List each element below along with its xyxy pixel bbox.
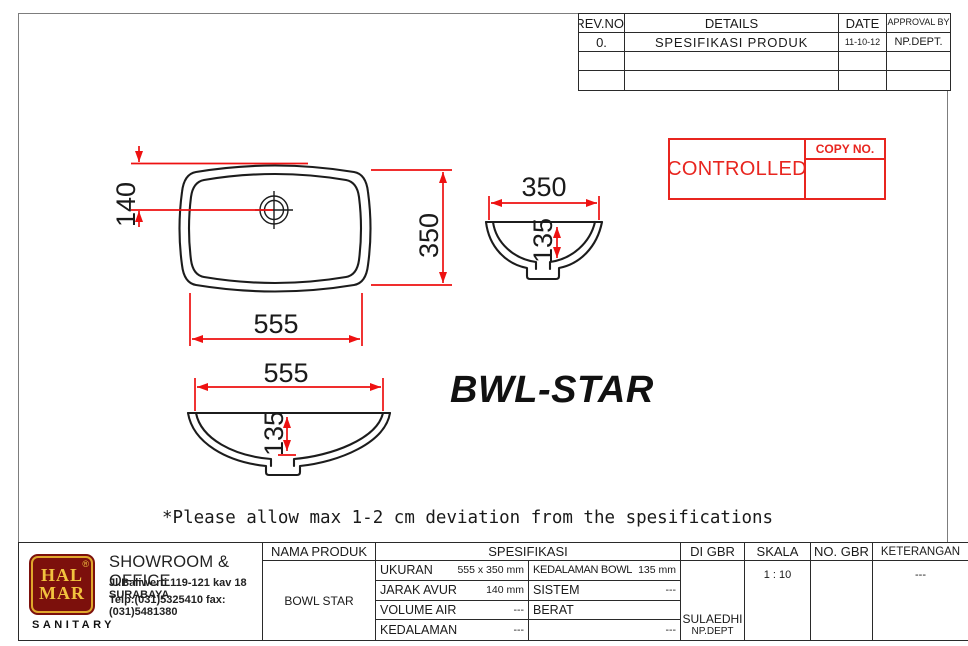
dim-140-text: 140 — [111, 182, 141, 227]
deviation-note: *Please allow max 1-2 cm deviation from … — [162, 508, 773, 528]
logo-text-hal: HAL — [41, 567, 83, 584]
spec-value: --- — [514, 604, 525, 616]
di-gbr-header: DI GBR — [681, 543, 744, 561]
skala-header: SKALA — [745, 543, 810, 561]
nama-produk-value: BOWL STAR — [263, 561, 375, 640]
top-view — [180, 166, 371, 292]
spec-label: VOLUME AIR — [380, 603, 456, 617]
dim-555-front-text: 555 — [263, 358, 308, 388]
spec-label: BERAT — [533, 603, 574, 617]
spec-label: JARAK AVUR — [380, 583, 457, 597]
spec-row-empty: --- — [529, 620, 680, 640]
front-inner-wall — [196, 413, 383, 466]
dim-135-side-text: 135 — [528, 218, 558, 263]
dim-135-front: 135 — [259, 411, 296, 456]
spec-label: UKURAN — [380, 563, 433, 577]
skala-value: 1 : 10 — [745, 569, 810, 581]
product-title: BWL-STAR — [450, 369, 654, 412]
logo-text-mar: MAR — [39, 585, 85, 602]
spec-row-volume-air: VOLUME AIR --- — [376, 601, 529, 621]
spec-row-kedalaman-bowl: KEDALAMAN BOWL 135 mm — [529, 561, 680, 581]
dim-140: 140 — [111, 146, 308, 227]
keterangan-header: KETERANGAN — [873, 543, 968, 561]
spec-value: 135 mm — [638, 564, 676, 576]
spec-label: KEDALAMAN BOWL — [533, 564, 632, 576]
dim-555-front: 555 — [195, 358, 383, 411]
spec-row-sistem: SISTEM --- — [529, 581, 680, 601]
dim-350-plan: 350 — [371, 170, 452, 285]
keterangan-column: KETERANGAN --- — [873, 543, 968, 640]
spec-label: KEDALAMAN — [380, 623, 457, 637]
spec-value: --- — [666, 624, 677, 636]
spec-row-jarak-avur: JARAK AVUR 140 mm — [376, 581, 529, 601]
dim-350-side: 350 — [489, 172, 599, 220]
dim-350-plan-text: 350 — [414, 213, 444, 258]
skala-column: SKALA 1 : 10 — [745, 543, 811, 640]
company-phone: Telp:(031)5325410 fax:(031)5481380 — [109, 594, 262, 618]
registered-mark-icon: ® — [82, 559, 89, 569]
no-gbr-header: NO. GBR — [811, 543, 872, 561]
dim-135-side: 135 — [528, 218, 558, 263]
spec-row-kedalaman: KEDALAMAN --- — [376, 620, 529, 640]
dim-350-side-text: 350 — [521, 172, 566, 202]
di-gbr-column: DI GBR SULAEDHI NP.DEPT — [681, 543, 745, 640]
nama-produk-column: NAMA PRODUK BOWL STAR — [263, 543, 376, 640]
spec-row-berat: BERAT — [529, 601, 680, 621]
spec-value: 555 x 350 mm — [457, 564, 524, 576]
title-block: HAL MAR ® SANITARY SHOWROOM & OFFICE Jl.… — [18, 542, 968, 641]
spec-value: --- — [514, 624, 525, 636]
no-gbr-column: NO. GBR — [811, 543, 873, 640]
nama-produk-header: NAMA PRODUK — [263, 543, 375, 561]
drawing-sheet: REV.NO. DETAILS DATE APPROVAL BY 0. SPES… — [0, 0, 968, 646]
dim-135-front-text: 135 — [259, 411, 289, 456]
spec-label: SISTEM — [533, 583, 580, 597]
spec-row-ukuran: UKURAN 555 x 350 mm — [376, 561, 529, 581]
front-outer-wall — [188, 413, 390, 475]
spesifikasi-header: SPESIFIKASI — [376, 543, 680, 561]
spesifikasi-column: SPESIFIKASI UKURAN 555 x 350 mm KEDALAMA… — [376, 543, 681, 640]
spec-value: --- — [666, 584, 677, 596]
company-block: HAL MAR ® SANITARY SHOWROOM & OFFICE Jl.… — [19, 543, 263, 640]
di-gbr-name: SULAEDHI — [681, 612, 744, 626]
bowl-inner-outline — [189, 174, 361, 283]
dim-555-plan: 555 — [190, 293, 362, 346]
halmar-logo: HAL MAR ® — [31, 556, 93, 613]
sanitary-label: SANITARY — [32, 619, 115, 631]
di-gbr-dept: NP.DEPT — [681, 626, 744, 637]
front-view — [188, 413, 390, 475]
bowl-outer-outline — [180, 166, 371, 292]
spec-value: 140 mm — [486, 584, 524, 596]
keterangan-value: --- — [873, 569, 968, 581]
dim-555-plan-text: 555 — [253, 309, 298, 339]
